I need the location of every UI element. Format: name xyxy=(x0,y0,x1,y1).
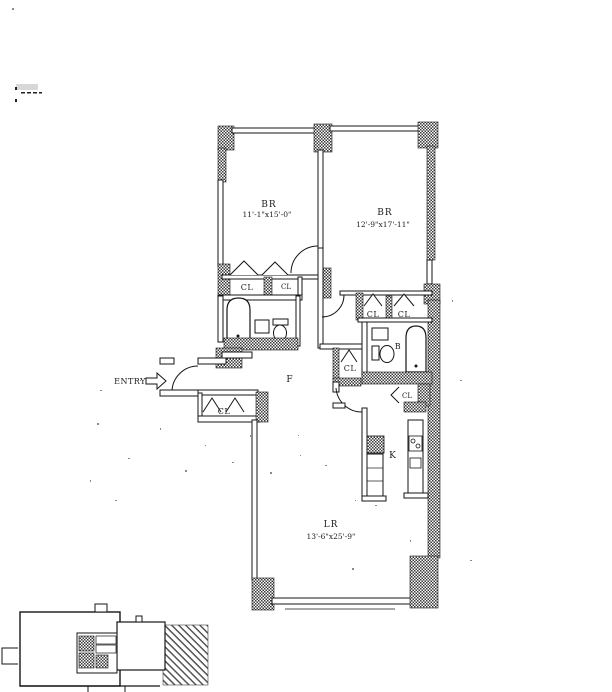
door-swing xyxy=(172,366,198,392)
wall-corner-block xyxy=(410,556,438,608)
refrigerator-icon xyxy=(367,436,384,453)
toilet-tank xyxy=(273,319,288,325)
wall-segment xyxy=(427,146,435,260)
wall-segment xyxy=(320,344,362,349)
toilet-tank xyxy=(372,346,379,360)
closet-label: CL xyxy=(344,364,357,373)
kitchen-label: K xyxy=(389,451,397,461)
kitchen-counter xyxy=(367,454,383,496)
wall-segment xyxy=(252,420,257,580)
door-swing xyxy=(291,246,318,273)
exterior-wall-top xyxy=(218,122,438,152)
window xyxy=(232,128,316,133)
wall-segment xyxy=(222,352,252,358)
wall-segment xyxy=(218,295,302,300)
room-label: BR xyxy=(377,208,392,218)
closets-left: CL CL xyxy=(218,261,318,300)
wall-segment xyxy=(362,496,386,501)
closets-right: CL CL xyxy=(356,293,432,322)
room-label: LR xyxy=(324,520,339,530)
wall-segment xyxy=(404,493,428,498)
closet-door-chevron xyxy=(262,262,288,275)
closet-door-chevron xyxy=(230,261,258,275)
wall-segment xyxy=(362,408,367,498)
closet-label: CL xyxy=(402,392,412,400)
sink-icon xyxy=(255,320,269,333)
keyplan-notch xyxy=(95,604,107,612)
closet-label: CL xyxy=(218,407,231,416)
window xyxy=(427,260,432,284)
window xyxy=(218,180,223,266)
bathtub-drain xyxy=(415,365,418,368)
wall-segment xyxy=(160,358,174,364)
wall-segment xyxy=(218,296,223,342)
wall-segment xyxy=(198,390,258,395)
bath-label: B xyxy=(395,342,401,351)
room-dims: 13'-6"x25'-9" xyxy=(307,532,356,541)
closet-door-chevron xyxy=(394,294,414,306)
wall-segment xyxy=(333,348,339,380)
keyplan-elevator xyxy=(79,653,94,668)
wall-segment xyxy=(318,150,323,248)
key-plan xyxy=(2,604,208,692)
floor-plan-drawing: BR 11'-1"x15'-0" BR 12'-9"x17'-11" CL CL xyxy=(0,0,612,692)
closet-door-chevron xyxy=(341,350,357,362)
wall-segment xyxy=(340,291,432,295)
bathtub-drain xyxy=(237,335,240,338)
wall-segment xyxy=(218,264,230,296)
floor-plan-scan: BR 11'-1"x15'-0" BR 12'-9"x17'-11" CL CL xyxy=(0,0,612,692)
wall-segment xyxy=(362,322,367,376)
bedroom-right: BR 12'-9"x17'-11" xyxy=(356,146,440,304)
wall-segment xyxy=(356,293,363,320)
wall-corner-block xyxy=(252,578,274,610)
keyplan-unit-highlight xyxy=(163,625,208,685)
toilet-icon xyxy=(380,346,394,363)
room-dims: 11'-1"x15'-0" xyxy=(243,210,292,219)
wall-segment xyxy=(218,148,226,182)
foyer-label: F xyxy=(286,375,293,385)
stove-icon xyxy=(409,436,422,451)
wall-segment xyxy=(386,296,392,318)
kitchen: K xyxy=(333,382,428,501)
wall-segment xyxy=(160,390,198,396)
closet-label: CL xyxy=(281,283,291,291)
wall-segment xyxy=(318,248,323,348)
bathroom-right: B xyxy=(362,322,432,384)
keyplan-stair xyxy=(96,655,108,668)
sink-icon xyxy=(410,458,421,468)
entry-label: ENTRY xyxy=(114,377,146,386)
keyplan-wing-right xyxy=(117,622,165,670)
window xyxy=(272,598,412,604)
room-label: BR xyxy=(261,200,276,210)
wall-segment xyxy=(362,372,432,384)
wall-segment xyxy=(298,277,302,295)
wall-segment xyxy=(198,358,226,364)
wall-segment xyxy=(198,416,260,422)
wall-corner-block xyxy=(314,124,332,152)
keyplan-elevator xyxy=(79,636,94,651)
closet-entry: CL xyxy=(198,390,268,422)
kitchen-counter xyxy=(408,420,423,493)
wall-segment xyxy=(404,402,426,412)
keyplan-stub xyxy=(2,648,18,664)
closet-door-chevron xyxy=(364,294,382,306)
wall-corner-block xyxy=(418,122,438,148)
wall-segment xyxy=(358,318,432,322)
closet-label: CL xyxy=(241,283,254,292)
wall-segment xyxy=(256,392,268,422)
sink-icon xyxy=(372,328,388,340)
closet-hall: CL xyxy=(320,344,362,386)
closet-door-chevron xyxy=(391,387,399,403)
keyplan-notch xyxy=(136,616,142,622)
room-dims: 12'-9"x17'-11" xyxy=(356,220,410,229)
wall-segment xyxy=(264,277,272,295)
entry-arrow-icon xyxy=(146,373,166,389)
exterior-wall-right xyxy=(428,300,440,558)
wall-segment xyxy=(333,403,345,408)
window xyxy=(330,126,420,131)
